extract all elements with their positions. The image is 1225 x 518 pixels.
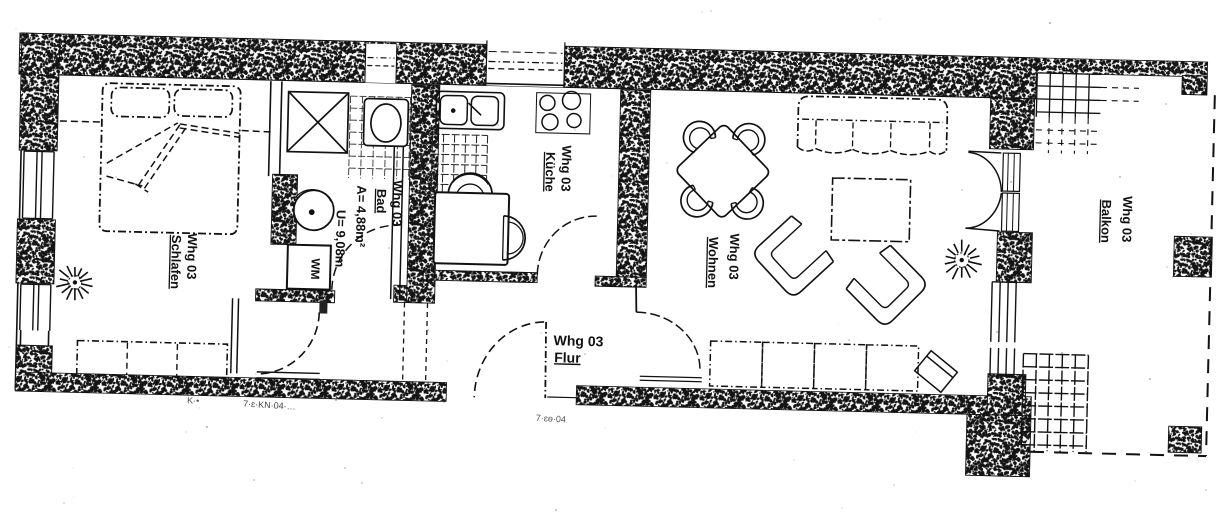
svg-text:Whg 03: Whg 03 xyxy=(726,233,742,280)
svg-text:Whg 03: Whg 03 xyxy=(558,145,574,192)
svg-text:WM: WM xyxy=(308,258,323,280)
svg-text:Schlafen: Schlafen xyxy=(168,235,184,290)
svg-text:Whg 03: Whg 03 xyxy=(553,332,603,349)
svg-text:Bad: Bad xyxy=(374,189,390,214)
svg-text:Whg 03: Whg 03 xyxy=(389,180,405,227)
svg-text:Wohnen: Wohnen xyxy=(705,237,721,288)
svg-text:A= 4,88m²: A= 4,88m² xyxy=(353,185,370,248)
svg-text:K·•: K·• xyxy=(187,395,200,406)
svg-text:Whg 03: Whg 03 xyxy=(1119,196,1135,243)
svg-text:Whg 03: Whg 03 xyxy=(184,233,200,280)
svg-text:7·ɛө·04: 7·ɛө·04 xyxy=(536,413,567,425)
svg-text:Küche: Küche xyxy=(542,152,558,192)
svg-text:Flur: Flur xyxy=(554,349,581,366)
svg-text:U= 9,08m: U= 9,08m xyxy=(332,210,348,268)
svg-text:Balkon: Balkon xyxy=(1098,199,1114,243)
